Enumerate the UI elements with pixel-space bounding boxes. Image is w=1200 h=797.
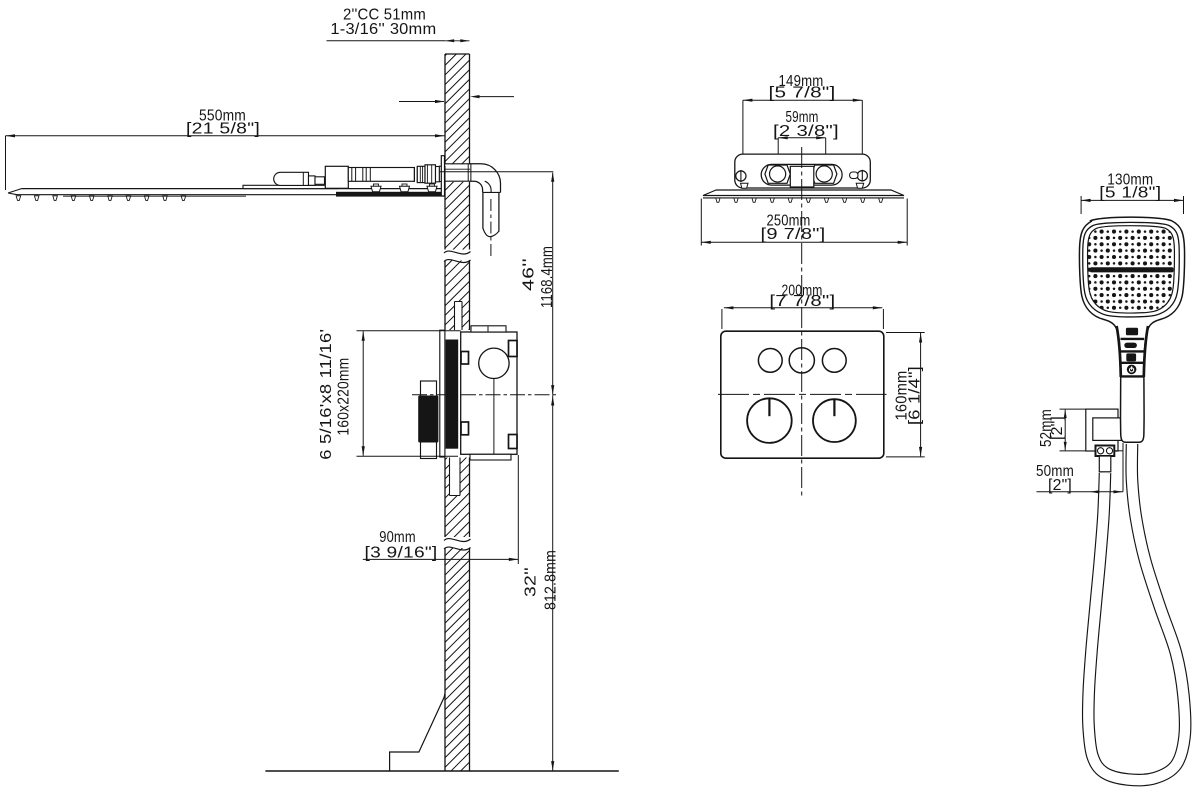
svg-text:90mm: 90mm [379,529,416,546]
svg-text:6 5/16'x8 11/16': 6 5/16'x8 11/16' [318,329,335,460]
svg-text:1-3/16'' 30mm: 1-3/16'' 30mm [330,21,436,38]
svg-text:[21 5/8"]: [21 5/8"] [186,121,260,138]
svg-text:[2"]: [2"] [1048,477,1072,494]
svg-text:[6 1/4"]: [6 1/4"] [906,366,923,425]
svg-text:46'': 46'' [521,258,538,291]
svg-text:[5 1/8"]: [5 1/8"] [1099,185,1161,202]
svg-text:160x220mm: 160x220mm [336,358,353,436]
svg-text:32'': 32'' [523,567,540,597]
svg-text:[5 7/8"]: [5 7/8"] [769,85,836,102]
svg-text:[2"]: [2"] [1049,416,1066,440]
svg-text:1168.4mm: 1168.4mm [539,246,556,308]
svg-text:812.8mm: 812.8mm [542,550,559,610]
svg-text:[9 7/8"]: [9 7/8"] [761,226,826,243]
